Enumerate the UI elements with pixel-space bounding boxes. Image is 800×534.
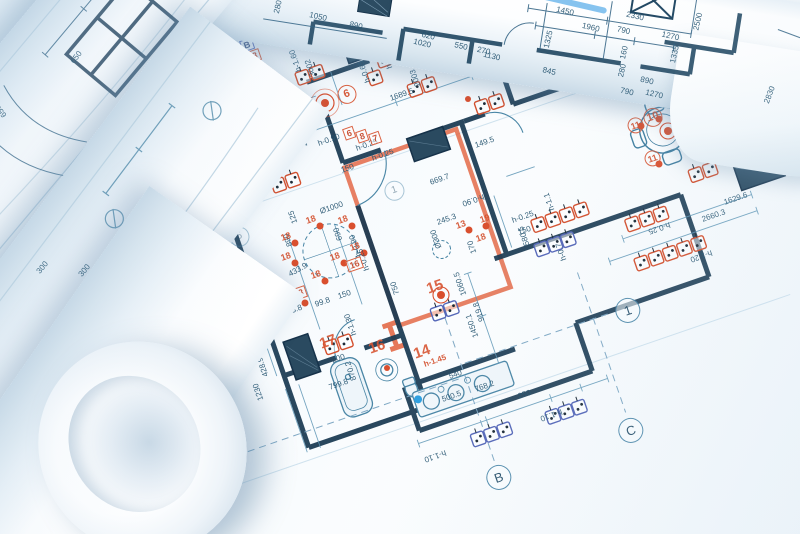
orange-marker-room-outline	[329, 129, 517, 349]
dimension-label: 790	[619, 86, 634, 98]
diameter-reference-circles	[296, 188, 453, 301]
dimension-label: 1050	[308, 10, 327, 23]
dimension-label: 790	[616, 24, 631, 36]
dimension-label: 2500	[691, 12, 704, 31]
dimension-label: 1960	[581, 21, 600, 34]
dimension-label: 2830	[762, 85, 777, 105]
dimension-label: 1130	[482, 50, 501, 63]
dimension-label: 890	[349, 20, 364, 32]
dimension-label: 1450	[555, 5, 574, 18]
blueprint-photo-scene: 1481.51489.5h-1.105905001094.73002h-1.60…	[0, 0, 800, 534]
dimension-label: 2330	[625, 10, 644, 23]
dimension-label: 890	[639, 75, 654, 87]
dimension-label: 1270	[644, 88, 663, 101]
roll-spiral-core	[42, 350, 227, 534]
dimension-label: 550	[454, 40, 469, 52]
dimension-label: 1325	[542, 30, 555, 49]
dimension-label: 1335	[668, 45, 681, 64]
dimension-label: 280	[272, 0, 284, 14]
dimension-label: 845	[542, 65, 557, 77]
dimension-label: 280	[616, 63, 628, 78]
dimension-label: 160	[618, 45, 630, 60]
dimension-label: 1270	[661, 29, 680, 42]
